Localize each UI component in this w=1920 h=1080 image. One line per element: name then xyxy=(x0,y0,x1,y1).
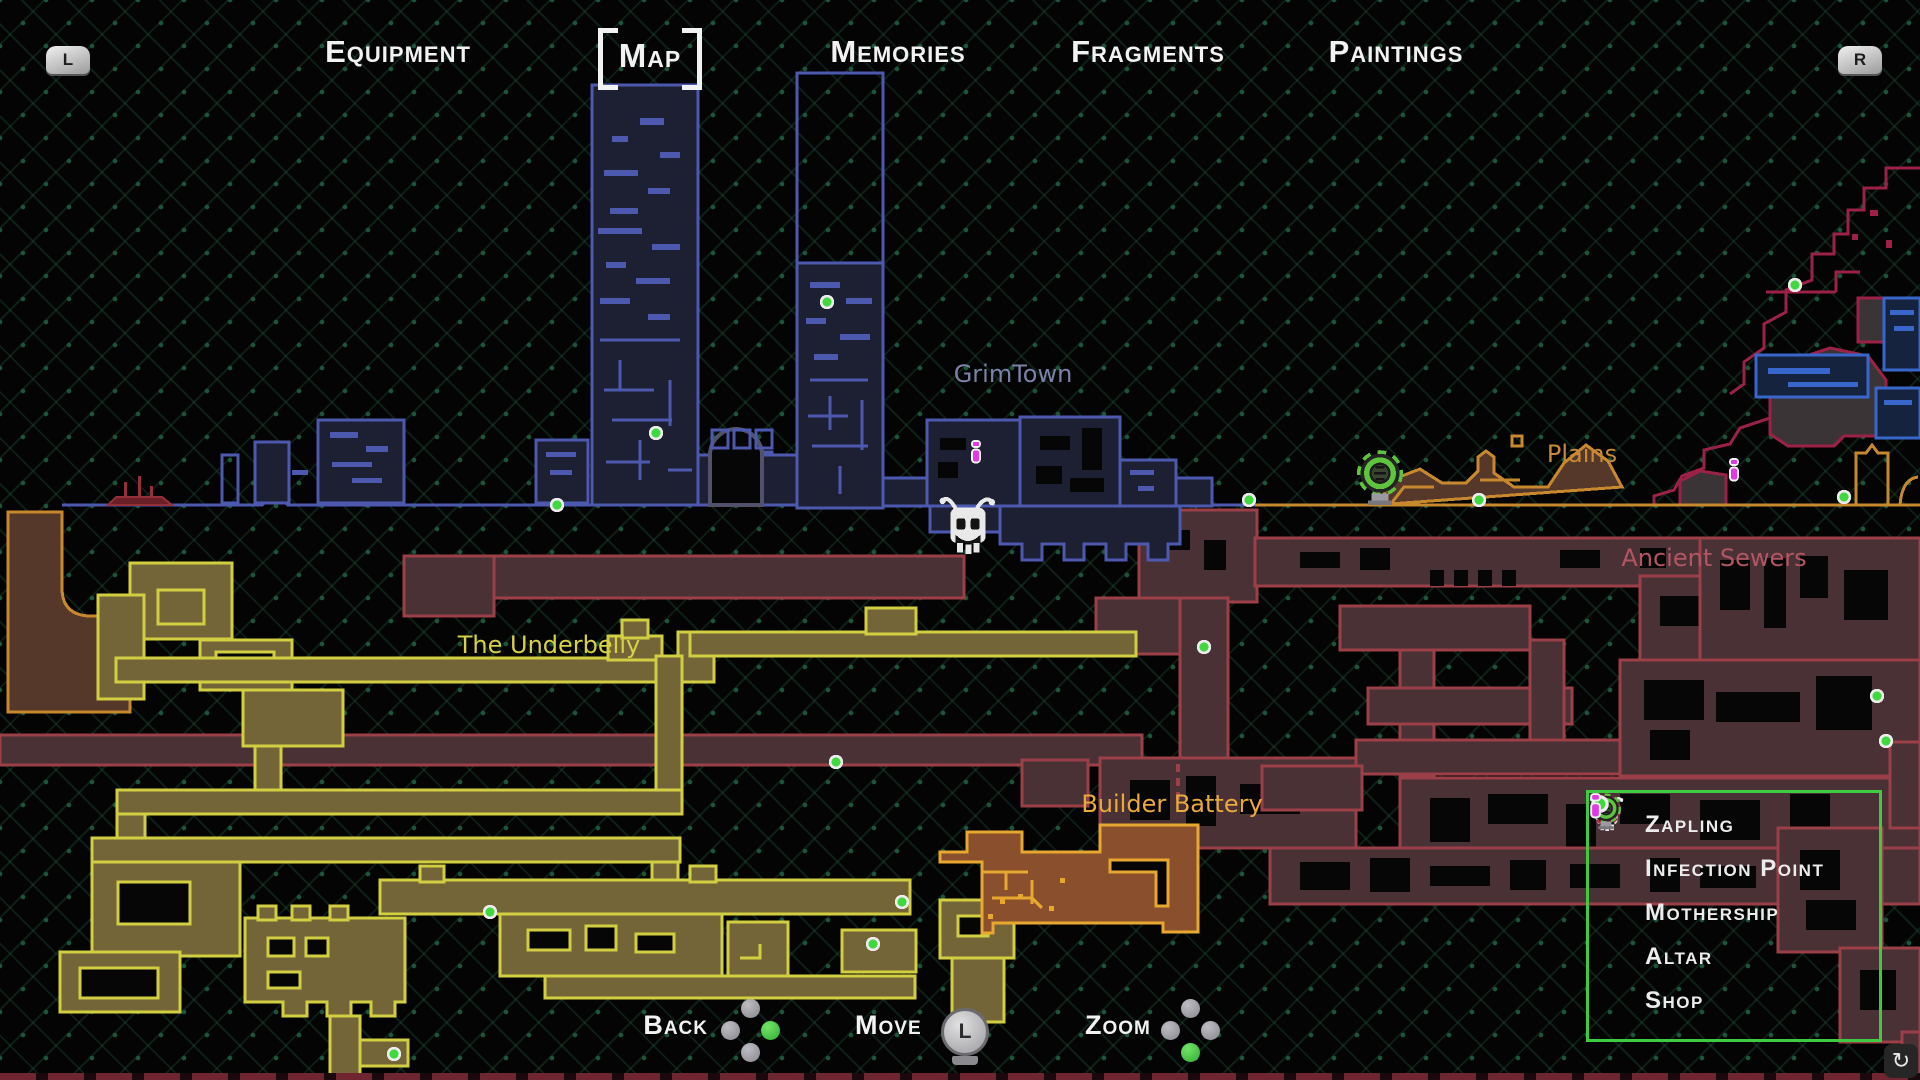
tab-map[interactable]: Map xyxy=(619,37,681,75)
altar-marker xyxy=(1838,491,1850,503)
zoom-label: Zoom xyxy=(1085,1010,1151,1041)
shop-marker xyxy=(972,441,980,463)
shop-marker xyxy=(1730,459,1738,481)
altar-marker xyxy=(388,1048,400,1060)
map-screen: GrimTown Plains Ancient Sewers The Under… xyxy=(0,0,1920,1080)
tab-map-selected[interactable]: Map xyxy=(598,28,702,90)
altar-marker xyxy=(1871,690,1883,702)
stick-base xyxy=(952,1056,978,1065)
region-label-plains: Plains xyxy=(1547,440,1617,468)
face-button-right-icon[interactable] xyxy=(1201,1021,1220,1040)
altar-marker xyxy=(830,756,842,768)
left-shoulder-button[interactable]: L xyxy=(46,46,90,74)
altar-marker xyxy=(1198,641,1210,653)
face-button-right-icon[interactable] xyxy=(761,1021,780,1040)
altar-marker xyxy=(896,896,908,908)
legend-item-mothership: Mothership xyxy=(1589,891,1879,935)
back-label: Back xyxy=(640,1010,708,1041)
altar-marker xyxy=(867,938,879,950)
tab-fragments[interactable]: Fragments xyxy=(1071,34,1225,70)
legend-item-shop: Shop xyxy=(1589,979,1879,1023)
altar-marker xyxy=(821,296,833,308)
region-label-the-underbelly: The Underbelly xyxy=(457,631,640,659)
move-label: Move xyxy=(855,1010,922,1041)
altar-marker xyxy=(484,906,496,918)
region-label-grimtown: GrimTown xyxy=(954,360,1073,388)
altar-marker xyxy=(1789,279,1801,291)
altar-marker xyxy=(1880,735,1892,747)
right-shoulder-button[interactable]: R xyxy=(1838,46,1882,74)
face-button-up-icon[interactable] xyxy=(1181,999,1200,1018)
region-label-ancient-sewers: Ancient Sewers xyxy=(1621,544,1806,572)
legend-item-altar: Altar xyxy=(1589,935,1879,979)
face-button-left-icon[interactable] xyxy=(721,1021,740,1040)
legend-item-zapling: Zapling xyxy=(1589,803,1879,847)
face-button-up-icon[interactable] xyxy=(741,999,760,1018)
left-bracket-icon xyxy=(598,28,618,90)
altar-marker xyxy=(551,499,563,511)
zoom-face-buttons[interactable] xyxy=(1159,999,1221,1061)
face-button-down-icon[interactable] xyxy=(741,1043,760,1062)
altar-marker xyxy=(1473,494,1485,506)
map-boundary-dashes xyxy=(0,1073,1920,1080)
left-stick-icon[interactable]: L xyxy=(941,1008,989,1056)
altar-marker xyxy=(650,427,662,439)
tab-memories[interactable]: Memories xyxy=(830,34,965,70)
shipwreck-icon xyxy=(108,476,172,505)
face-button-left-icon[interactable] xyxy=(1161,1021,1180,1040)
grimtown-region xyxy=(62,73,1255,560)
map-legend: Zapling Infection Point Mothership Altar… xyxy=(1586,790,1882,1042)
save-indicator-icon: ↻ xyxy=(1884,1044,1918,1078)
face-button-down-icon[interactable] xyxy=(1181,1043,1200,1062)
altar-marker xyxy=(1243,494,1255,506)
legend-item-infection-point: Infection Point xyxy=(1589,847,1879,891)
right-bracket-icon xyxy=(682,28,702,90)
tab-equipment[interactable]: Equipment xyxy=(325,34,471,70)
region-label-builder-battery: Builder Battery xyxy=(1081,790,1262,818)
tab-paintings[interactable]: Paintings xyxy=(1329,34,1464,70)
back-face-buttons[interactable] xyxy=(719,999,781,1061)
